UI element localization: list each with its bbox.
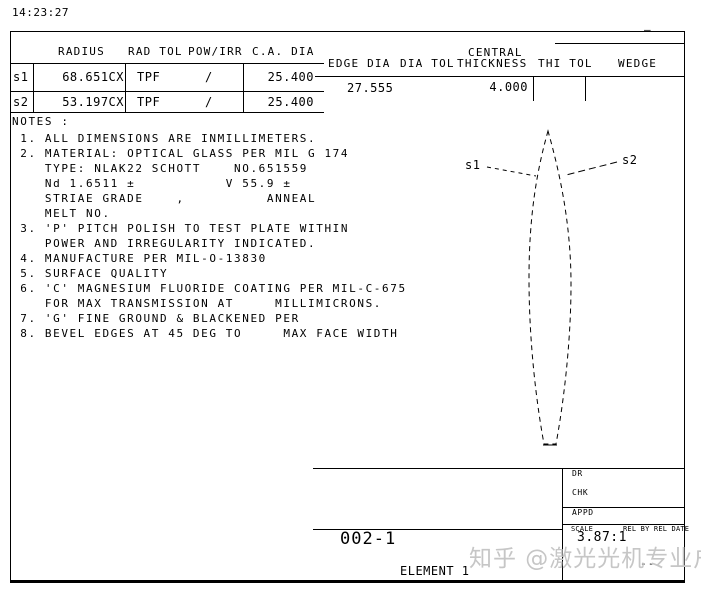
frame-left-border [10,31,11,583]
notes-title: NOTES : [12,116,70,128]
col-header-edge-dia: EDGE DIA [328,58,391,70]
title-block-top-line [313,468,684,469]
note-line: Nd 1.6511 ± V 55.9 ± [12,176,407,191]
row-s1-id: s1 [13,71,28,84]
note-line: 3. 'P' PITCH POLISH TO TEST PLATE WITHIN [12,221,407,236]
row-s1-pow-irr: / [205,71,213,84]
note-line: 2. MATERIAL: OPTICAL GLASS PER MIL G 174 [12,146,407,161]
note-line: POWER AND IRREGULARITY INDICATED. [12,236,407,251]
row-s2-ca-dia: 25.400 [250,96,314,109]
rev-mark: — [644,24,652,36]
row-s1-rad-tol: TPF [137,71,160,84]
element-label: ELEMENT 1 [400,565,470,578]
rel-by-rel-date-label: REL BY REL DATE [623,526,689,534]
part-number: 002-1 [340,530,396,549]
note-line: MELT NO. [12,206,407,221]
note-line: 7. 'G' FINE GROUND & BLACKENED PER [12,311,407,326]
s2-surface-label: s2 [622,154,637,167]
surface-table-bottom-line [10,112,324,113]
note-line: STRIAE GRADE , ANNEAL [12,191,407,206]
drawing-sheet: 14:23:27 RADIUS RAD TOL POW/IRR C.A. DIA… [0,0,701,591]
appd-label: APPD [572,509,594,518]
row-s2-id: s2 [13,96,28,109]
surface-table-vline-2 [125,63,126,112]
col-header-thickness: THICKNESS [457,58,527,70]
row-s2-rad-tol: TPF [137,96,160,109]
notes-block: 1. ALL DIMENSIONS ARE INMILLIMETERS. 2. … [12,131,407,341]
note-line: 4. MANUFACTURE PER MIL-O-13830 [12,251,407,266]
surface-table-header-underline [10,63,324,64]
dim-table-vline-2 [585,76,586,101]
col-header-wedge: WEDGE [618,58,657,70]
note-line: 5. SURFACE QUALITY [12,266,407,281]
note-line: 1. ALL DIMENSIONS ARE INMILLIMETERS. [12,131,407,146]
rev-box-line [555,43,684,44]
scale-value: 3.87:1 [577,531,627,545]
chk-label: CHK [572,489,588,498]
dim-table-vline-1 [533,76,534,101]
note-line: 8. BEVEL EDGES AT 45 DEG TO MAX FACE WID… [12,326,407,341]
row-s2-pow-irr: / [205,96,213,109]
s1-leader-line [487,167,536,176]
frame-right-border [684,31,685,583]
col-header-rad-tol: RAD TOL [128,46,183,58]
frame-top-border [10,31,685,32]
watermark: 知乎 @激光光机专业户 [469,547,701,572]
row-s1-radius: 68.651CX [36,71,124,84]
s2-leader-line [566,162,617,175]
col-header-dia-tol: DIA TOL [400,58,455,70]
central-thickness-value: 4.000 [478,81,528,94]
col-header-thi-tol: THI TOL [538,58,593,70]
surface-table-vline-3 [243,63,244,112]
s1-surface-label: s1 [465,159,480,172]
note-line: FOR MAX TRANSMISSION AT MILLIMICRONS. [12,296,407,311]
row-s1-ca-dia: 25.400 [250,71,314,84]
dr-label: DR [572,470,583,479]
edge-dia-value: 27.555 [347,82,393,95]
note-line: TYPE: NLAK22 SCHOTT NO.651559 [12,161,407,176]
frame-bottom-border [10,580,685,583]
note-line: 6. 'C' MAGNESIUM FLUORIDE COATING PER MI… [12,281,407,296]
surface-table-vline-1 [33,63,34,112]
row-s2-radius: 53.197CX [36,96,124,109]
timestamp: 14:23:27 [12,7,69,19]
dim-table-header-underline [315,76,684,77]
col-header-pow-irr: POW/IRR [188,46,243,58]
lens-profile-path [529,131,571,444]
surface-table-row-separator [10,91,324,92]
col-header-ca-dia: C.A. DIA [252,46,315,58]
col-header-radius: RADIUS [58,46,105,58]
